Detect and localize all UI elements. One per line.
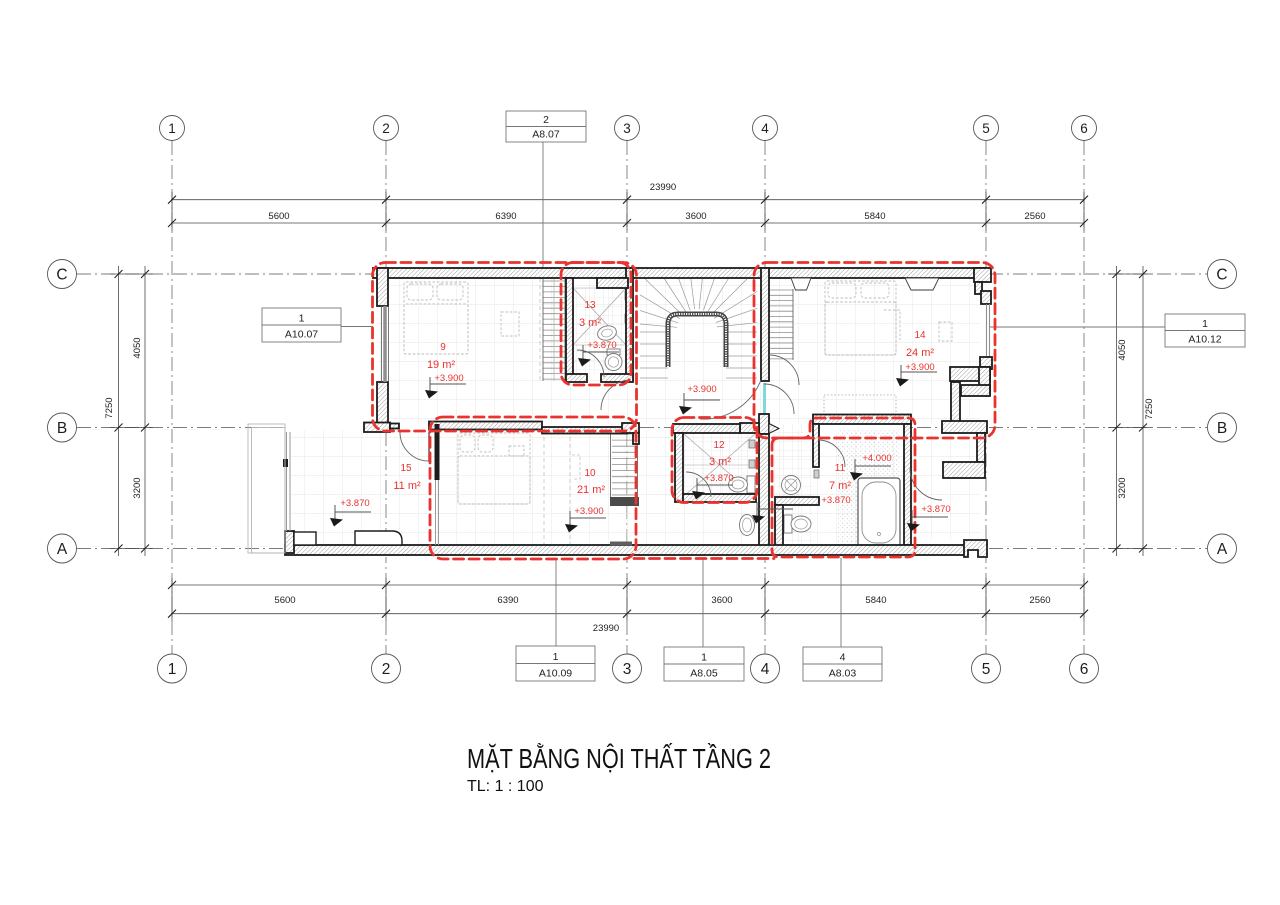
svg-text:14: 14	[914, 330, 926, 341]
svg-text:3200: 3200	[132, 477, 143, 498]
svg-text:A8.05: A8.05	[690, 668, 718, 680]
svg-text:1: 1	[168, 121, 176, 136]
svg-text:A8.07: A8.07	[532, 129, 560, 141]
svg-text:23990: 23990	[650, 182, 676, 193]
svg-text:3200: 3200	[1117, 477, 1128, 498]
svg-text:7 m²: 7 m²	[829, 480, 851, 492]
svg-text:4: 4	[840, 652, 846, 664]
svg-text:C: C	[1216, 267, 1227, 284]
svg-text:+3.900: +3.900	[574, 506, 603, 517]
svg-text:A: A	[57, 541, 68, 558]
svg-text:3: 3	[623, 661, 632, 678]
svg-text:+3.870: +3.870	[340, 498, 369, 509]
svg-text:1: 1	[299, 313, 305, 325]
svg-text:3600: 3600	[711, 595, 732, 606]
svg-text:15: 15	[400, 463, 412, 474]
svg-text:B: B	[57, 420, 67, 437]
svg-text:MẶT BẰNG NỘI THẤT TẦNG 2: MẶT BẰNG NỘI THẤT TẦNG 2	[467, 743, 771, 774]
svg-text:5840: 5840	[864, 211, 885, 222]
svg-text:2: 2	[382, 121, 390, 136]
svg-text:+4.000: +4.000	[862, 453, 891, 464]
svg-text:3600: 3600	[685, 211, 706, 222]
svg-text:A8.03: A8.03	[829, 668, 857, 680]
svg-text:13: 13	[584, 300, 596, 311]
svg-text:3 m²: 3 m²	[709, 456, 731, 468]
svg-text:A10.12: A10.12	[1188, 334, 1221, 346]
svg-text:4: 4	[761, 121, 769, 136]
svg-text:A10.07: A10.07	[285, 329, 318, 341]
svg-text:2560: 2560	[1024, 211, 1045, 222]
svg-text:6390: 6390	[495, 211, 516, 222]
svg-text:3 m²: 3 m²	[579, 317, 601, 329]
svg-text:+3.870: +3.870	[704, 473, 733, 484]
svg-text:C: C	[56, 267, 67, 284]
svg-text:+3.870: +3.870	[587, 340, 616, 351]
svg-text:23990: 23990	[593, 623, 619, 634]
svg-text:1: 1	[553, 651, 559, 663]
svg-text:2560: 2560	[1029, 595, 1050, 606]
svg-text:5600: 5600	[268, 211, 289, 222]
svg-text:5: 5	[982, 661, 991, 678]
svg-text:TL: 1 : 100: TL: 1 : 100	[467, 778, 544, 795]
svg-text:19 m²: 19 m²	[427, 359, 455, 371]
svg-text:6: 6	[1080, 661, 1089, 678]
svg-text:2: 2	[543, 114, 549, 126]
svg-text:7250: 7250	[1144, 398, 1155, 419]
svg-text:+3.900: +3.900	[905, 362, 934, 373]
svg-text:1: 1	[701, 652, 707, 664]
svg-text:1: 1	[1202, 318, 1208, 330]
svg-text:5: 5	[982, 121, 990, 136]
svg-text:7250: 7250	[104, 397, 115, 418]
svg-text:+3.870: +3.870	[821, 495, 850, 506]
svg-text:11: 11	[835, 463, 846, 474]
svg-text:5600: 5600	[274, 595, 295, 606]
svg-text:10: 10	[584, 468, 596, 479]
svg-text:6: 6	[1080, 121, 1088, 136]
svg-text:6390: 6390	[497, 595, 518, 606]
svg-text:B: B	[1217, 420, 1227, 437]
svg-text:4050: 4050	[132, 337, 143, 358]
svg-text:4: 4	[761, 661, 770, 678]
svg-text:+3.900: +3.900	[434, 373, 463, 384]
svg-text:11 m²: 11 m²	[393, 480, 421, 492]
svg-text:9: 9	[440, 342, 446, 353]
svg-text:2: 2	[382, 661, 391, 678]
svg-text:1: 1	[168, 661, 177, 678]
svg-text:12: 12	[713, 440, 725, 451]
svg-text:4050: 4050	[1117, 339, 1128, 360]
svg-text:A: A	[1217, 541, 1228, 558]
svg-text:3: 3	[623, 121, 631, 136]
svg-text:+3.870: +3.870	[921, 504, 950, 515]
svg-text:+3.900: +3.900	[687, 384, 716, 395]
svg-text:A10.09: A10.09	[539, 668, 572, 680]
svg-text:21 m²: 21 m²	[577, 484, 605, 496]
svg-text:5840: 5840	[865, 595, 886, 606]
svg-text:24 m²: 24 m²	[906, 347, 934, 359]
